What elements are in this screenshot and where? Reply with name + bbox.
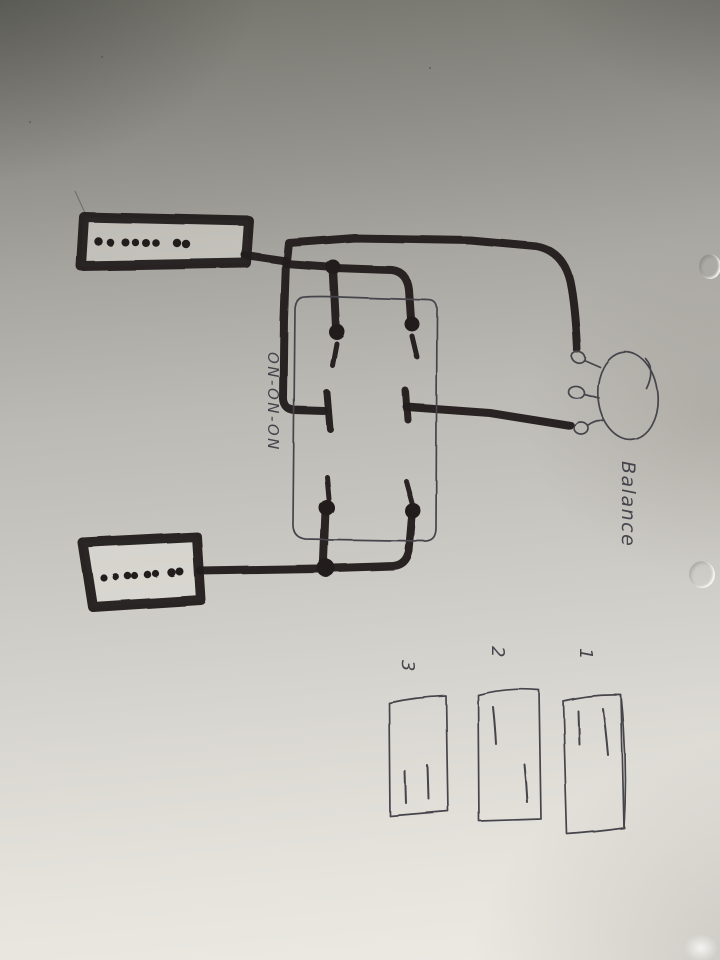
position-box-1-contact-a bbox=[578, 711, 579, 744]
pot-lug-bottom bbox=[574, 422, 588, 434]
wire-bottom-to-br bbox=[334, 517, 412, 568]
wire-bl-down bbox=[324, 511, 326, 561]
wire-junction-to-tr bbox=[335, 268, 411, 319]
position-box-2-outline bbox=[478, 689, 541, 821]
switch-terminal-top-right-tick bbox=[412, 336, 417, 357]
pot-lug-middle bbox=[567, 385, 585, 400]
position-box-3-outline bbox=[389, 696, 448, 816]
position-box-1-contact-b bbox=[603, 709, 608, 755]
switch-terminal-bottom-left-tick bbox=[327, 477, 329, 499]
switch-terminal-mid-right bbox=[406, 391, 408, 420]
switch-terminals bbox=[319, 317, 421, 520]
pot-lug-top-link bbox=[584, 360, 600, 367]
switch-terminal-bottom-right-tick bbox=[406, 481, 412, 503]
switch-terminal-bottom-right bbox=[405, 503, 421, 519]
paper-specks bbox=[29, 56, 431, 213]
switch-terminal-top-left bbox=[329, 324, 345, 340]
pot-body bbox=[594, 349, 663, 443]
switch-terminal-top-left-tick bbox=[333, 344, 337, 366]
position-box-2 bbox=[478, 689, 541, 821]
switch-terminal-bottom-left bbox=[319, 500, 335, 516]
pot-lug-top bbox=[570, 349, 587, 364]
pot-lug-bottom-link bbox=[588, 421, 603, 426]
neck-pickup-body bbox=[81, 217, 249, 266]
position-box-2-contact-b bbox=[524, 764, 527, 802]
junction-bottom bbox=[317, 559, 335, 577]
wire-mr-to-pot bbox=[407, 407, 571, 426]
bridge-pickup bbox=[83, 537, 201, 607]
pot-lug-middle-link bbox=[584, 394, 599, 398]
switch-terminal-top-right bbox=[405, 317, 420, 332]
position-number-1: 1 bbox=[575, 648, 596, 659]
neck-pickup bbox=[81, 217, 249, 266]
wire-to-top-junction bbox=[286, 264, 328, 267]
position-number-2: 2 bbox=[487, 646, 508, 657]
position-box-1 bbox=[563, 695, 625, 834]
position-box-2-contact-a bbox=[493, 707, 496, 744]
photo-of-paper: ON-ON-ON Balance 3 2 1 bbox=[0, 0, 720, 960]
wire-left-descender bbox=[283, 261, 324, 411]
junction-top bbox=[326, 260, 341, 275]
position-box-3 bbox=[389, 696, 448, 816]
balance-pot bbox=[567, 349, 662, 443]
position-box-3-contact-b bbox=[428, 766, 429, 799]
position-box-1-outline bbox=[563, 695, 624, 834]
position-box-3-contact-a bbox=[405, 771, 406, 803]
switch-type-label: ON-ON-ON bbox=[264, 352, 282, 452]
wiring-diagram-svg: ON-ON-ON Balance 3 2 1 bbox=[0, 0, 720, 960]
wire-bridge-pickup-out bbox=[200, 569, 318, 571]
position-number-3: 3 bbox=[397, 660, 418, 671]
marker-drawing bbox=[81, 217, 577, 607]
balance-label: Balance bbox=[617, 461, 639, 547]
switch-terminal-mid-left bbox=[327, 393, 330, 429]
